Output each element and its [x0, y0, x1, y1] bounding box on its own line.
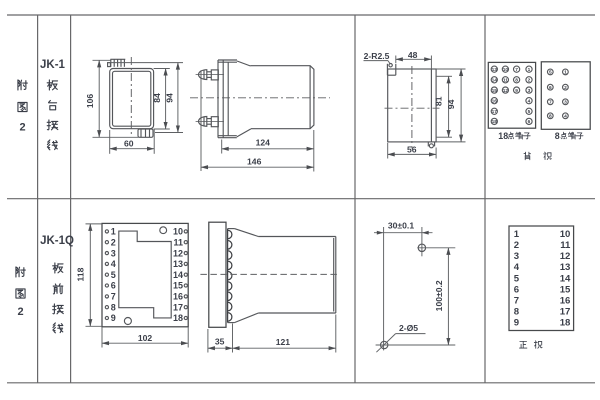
svg-text:94: 94: [446, 99, 456, 109]
svg-text:1: 1: [564, 70, 567, 76]
svg-text:84: 84: [152, 93, 162, 103]
svg-text:11: 11: [560, 240, 571, 251]
svg-text:102: 102: [138, 333, 153, 343]
svg-text:3: 3: [514, 251, 519, 262]
svg-text:8: 8: [555, 131, 560, 141]
svg-text:2: 2: [19, 122, 25, 134]
svg-text:2-R2.5: 2-R2.5: [364, 51, 390, 61]
svg-text:48: 48: [408, 50, 418, 60]
svg-text:60: 60: [124, 139, 134, 149]
svg-text:7: 7: [549, 100, 552, 106]
svg-text:12: 12: [173, 248, 183, 258]
svg-text:17: 17: [560, 307, 571, 318]
svg-text:1: 1: [111, 227, 116, 237]
svg-text:16: 16: [173, 292, 183, 302]
svg-text:9: 9: [111, 313, 116, 323]
svg-text:124: 124: [256, 138, 271, 148]
svg-text:17: 17: [173, 302, 183, 312]
svg-text:16: 16: [492, 98, 498, 104]
svg-text:5: 5: [514, 273, 520, 284]
svg-text:94: 94: [164, 93, 174, 103]
svg-text:JK-1: JK-1: [40, 59, 66, 71]
svg-text:56: 56: [407, 144, 417, 154]
svg-text:8: 8: [549, 114, 552, 120]
svg-text:4: 4: [111, 259, 116, 269]
svg-text:18: 18: [498, 131, 508, 141]
svg-text:18: 18: [173, 313, 183, 323]
svg-text:2-Ø5: 2-Ø5: [399, 323, 418, 333]
svg-text:1: 1: [528, 67, 531, 73]
svg-text:3: 3: [528, 88, 531, 94]
svg-text:1: 1: [514, 229, 520, 240]
svg-text:118: 118: [76, 267, 86, 281]
svg-text:10: 10: [560, 229, 571, 240]
svg-text:7: 7: [111, 292, 116, 302]
svg-text:15: 15: [492, 88, 498, 94]
svg-text:7: 7: [515, 67, 518, 73]
svg-text:3: 3: [111, 248, 116, 258]
svg-text:15: 15: [560, 284, 571, 295]
svg-text:18: 18: [560, 318, 571, 329]
svg-text:14: 14: [173, 270, 183, 280]
svg-text:3: 3: [564, 100, 567, 106]
svg-text:6: 6: [549, 85, 552, 91]
svg-text:35: 35: [215, 336, 225, 346]
svg-text:6: 6: [514, 284, 519, 295]
svg-text:30±0.1: 30±0.1: [388, 220, 414, 230]
svg-text:2: 2: [514, 240, 519, 251]
svg-text:7: 7: [514, 296, 519, 307]
svg-text:12: 12: [560, 251, 571, 262]
svg-text:8: 8: [111, 302, 116, 312]
svg-text:8: 8: [514, 307, 520, 318]
svg-text:106: 106: [85, 94, 95, 109]
svg-text:5: 5: [111, 270, 116, 280]
svg-text:2: 2: [111, 237, 116, 247]
svg-text:11: 11: [503, 78, 508, 84]
svg-text:81: 81: [433, 96, 443, 106]
svg-text:6: 6: [111, 281, 116, 291]
svg-text:2: 2: [564, 85, 567, 91]
svg-text:5: 5: [528, 109, 531, 115]
svg-text:14: 14: [492, 78, 498, 84]
svg-text:12: 12: [503, 88, 509, 94]
svg-text:18: 18: [492, 119, 498, 125]
svg-text:16: 16: [560, 296, 571, 307]
svg-text:6: 6: [528, 119, 531, 125]
svg-text:9: 9: [515, 88, 518, 94]
svg-text:13: 13: [560, 262, 571, 273]
svg-text:13: 13: [492, 67, 498, 73]
svg-text:14: 14: [560, 273, 571, 284]
svg-text:JK-1Q: JK-1Q: [40, 235, 74, 247]
svg-text:8: 8: [515, 78, 518, 84]
svg-text:146: 146: [247, 156, 262, 166]
svg-text:10: 10: [503, 67, 509, 73]
svg-text:17: 17: [492, 109, 498, 115]
svg-text:100±0.2: 100±0.2: [434, 280, 444, 311]
svg-text:10: 10: [173, 227, 183, 237]
svg-text:121: 121: [276, 337, 291, 347]
svg-text:15: 15: [173, 281, 183, 291]
svg-text:4: 4: [564, 114, 567, 120]
svg-text:4: 4: [514, 262, 520, 273]
svg-text:5: 5: [549, 70, 552, 76]
svg-text:2: 2: [528, 78, 531, 84]
svg-text:13: 13: [173, 259, 183, 269]
svg-text:9: 9: [514, 318, 519, 329]
svg-text:4: 4: [528, 98, 531, 104]
svg-text:2: 2: [17, 306, 23, 318]
svg-text:11: 11: [173, 237, 183, 247]
